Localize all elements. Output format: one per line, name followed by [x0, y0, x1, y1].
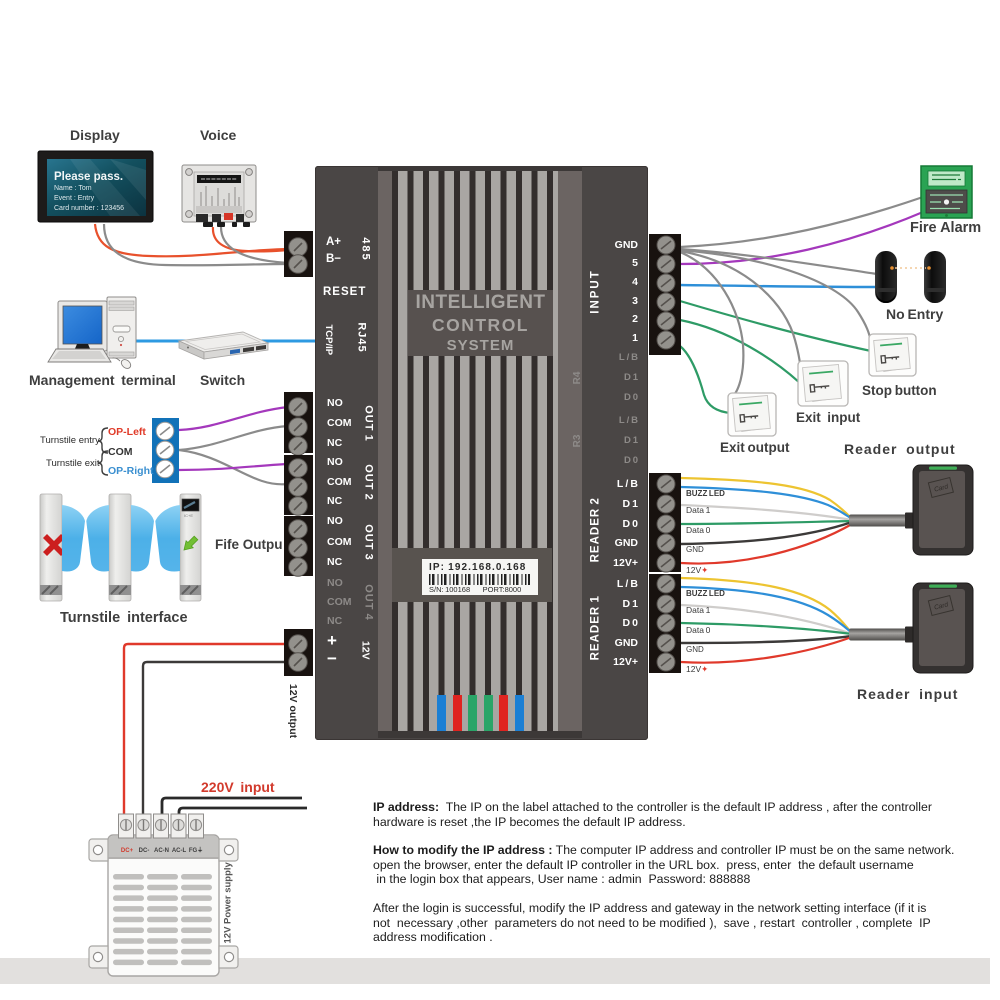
svg-text:Event : Entry: Event : Entry — [54, 195, 95, 202]
svg-text:DC-: DC- — [139, 848, 150, 854]
svg-text:AC-L: AC-L — [172, 848, 187, 854]
svg-text:IC+E: IC+E — [184, 513, 193, 518]
svg-text:DC+: DC+ — [121, 848, 134, 854]
svg-text:AC-N: AC-N — [154, 848, 169, 854]
svg-text:Name : Tom: Name : Tom — [54, 185, 92, 192]
svg-text:FG⏚: FG⏚ — [189, 847, 203, 854]
svg-text:Please pass.: Please pass. — [54, 171, 123, 183]
svg-text:Card number : 123456: Card number : 123456 — [54, 205, 124, 212]
